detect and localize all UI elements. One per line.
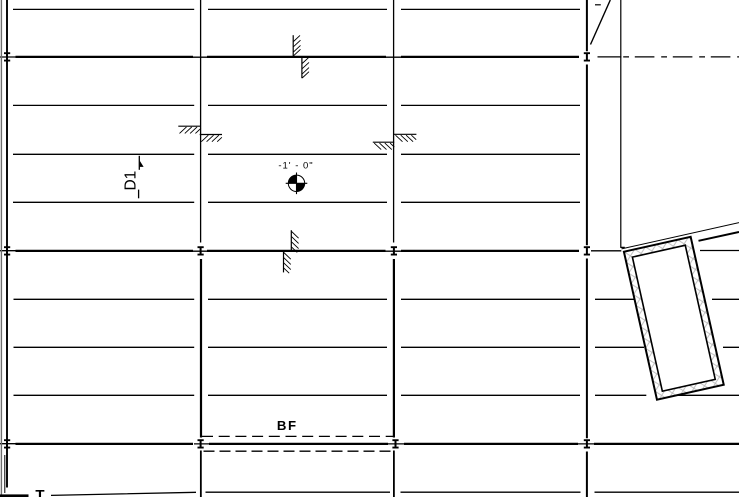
svg-text:T: T [35, 487, 44, 497]
svg-text:D1: D1 [122, 171, 139, 191]
svg-text:-1' - 0": -1' - 0" [278, 160, 313, 171]
svg-text:BF: BF [277, 418, 298, 433]
